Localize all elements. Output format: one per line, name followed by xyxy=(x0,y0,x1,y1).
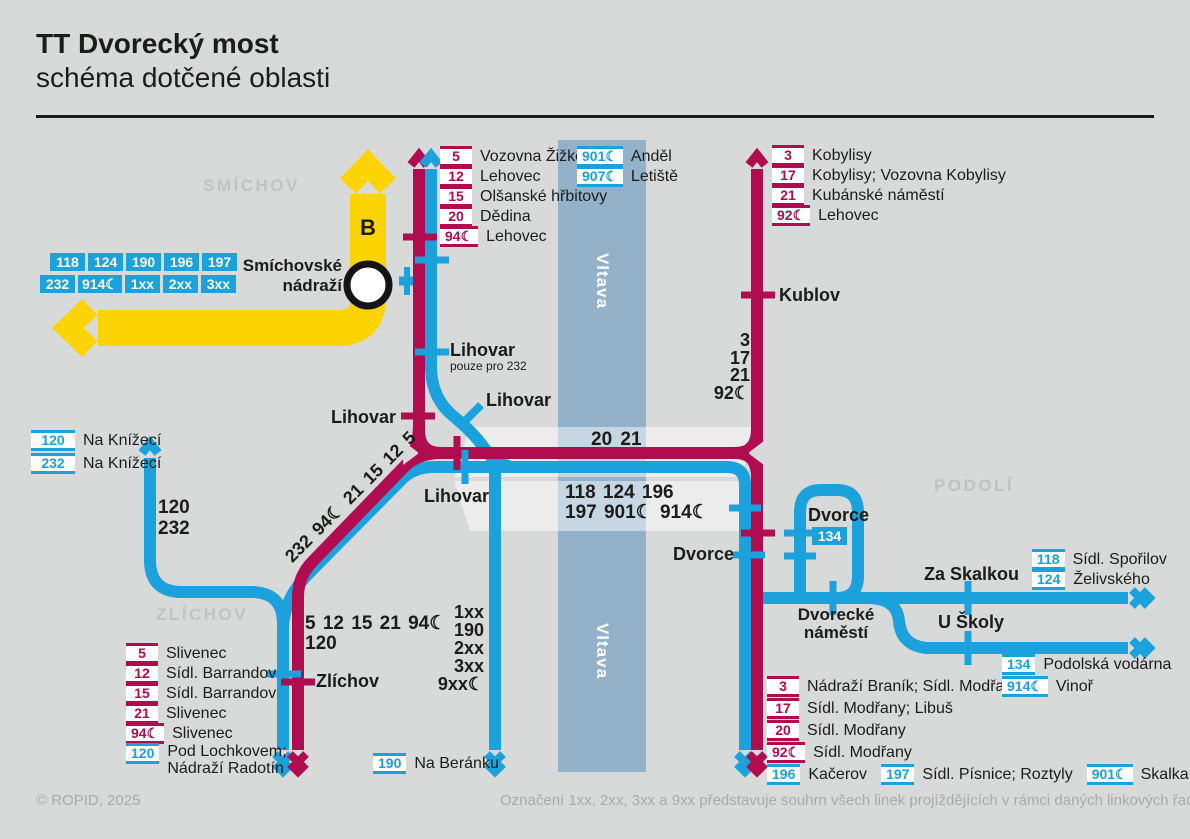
destination-label: Slivenec xyxy=(166,645,226,663)
page-subtitle: schéma dotčené oblasti xyxy=(36,62,330,94)
arrow-right-icon xyxy=(1132,590,1140,606)
bus-line-badge: 124 xyxy=(88,253,123,271)
terminus-row: 15 Olšanské hřbitovy xyxy=(440,186,607,207)
terminus-row: 15 Sídl. Barrandov xyxy=(126,683,276,704)
destination-label: Sídl. Barrandov xyxy=(166,665,276,683)
tram-line-badge: 3 xyxy=(767,676,799,697)
river-label: Vltava xyxy=(592,245,612,317)
terminus-row: 118 Sídl. Spořilov xyxy=(1032,549,1167,570)
metro-line-letter: B xyxy=(357,215,379,241)
route-numbers-line: 190 xyxy=(402,621,484,639)
route-numbers-line: 232 xyxy=(158,518,190,539)
tram-line-badge: 15 xyxy=(126,683,158,704)
terminus-row: 20 Sídl. Modřany xyxy=(767,720,906,741)
bus-line-badge: 914☾ xyxy=(78,275,122,293)
route-numbers-bridge-tram: 20 21 xyxy=(591,429,642,451)
station-label-zlichov: Zlíchov xyxy=(316,671,379,692)
destination-label: Sídl. Modřany xyxy=(813,744,912,762)
arrow-up-icon xyxy=(749,155,765,165)
terminus-row: 21 Kubánské náměstí xyxy=(772,185,945,206)
tram-line-badge: 12 xyxy=(126,663,158,684)
terminus-pair: 196 Kačerov xyxy=(767,764,867,785)
station-label-dvorce-loop: Dvorce xyxy=(808,505,869,526)
destination-label: Na Beránku xyxy=(414,755,499,773)
bus-line-badge: 197 xyxy=(202,253,237,271)
arrow-down-icon xyxy=(749,754,765,762)
terminus-row: 94☾ Lehovec xyxy=(440,226,547,247)
station-label-za-skalkou: Za Skalkou xyxy=(924,564,1019,585)
metro-station-circle xyxy=(347,264,389,306)
copyright-note: © ROPID, 2025 xyxy=(36,792,140,809)
bus-line-badge: 901☾ xyxy=(1087,764,1133,785)
destination-label: Sídl. Barrandov xyxy=(166,685,276,703)
terminus-row: 21 Slivenec xyxy=(126,703,226,724)
destination-label: Skalka xyxy=(1141,766,1189,784)
route-numbers-line: 3 xyxy=(698,332,750,350)
area-label-smichov: SMÍCHOV xyxy=(203,176,300,196)
bus-line-badge: 190 xyxy=(126,253,161,271)
route-numbers-kublov: 3 17 21 92☾ xyxy=(698,332,750,402)
terminus-row: 907☾ Letiště xyxy=(577,166,678,187)
tram-line-badge: 94☾ xyxy=(440,226,478,247)
area-label-zlichov: ZLÍCHOV xyxy=(156,605,248,625)
route-numbers-west: 120 232 xyxy=(158,497,190,539)
terminus-row: 901☾ Anděl xyxy=(577,146,672,167)
header-divider xyxy=(36,115,1154,118)
tram-line-badge: 20 xyxy=(440,206,472,227)
metro-badge-row: 118 124 190 196 197 xyxy=(50,253,237,271)
terminus-row: 914☾ Vinoř xyxy=(1002,676,1093,697)
destination-label: Na Knížecí xyxy=(83,455,161,473)
tram-line-badge: 12 xyxy=(440,166,472,187)
station-label-line: náměstí xyxy=(776,624,896,642)
bus-line-badge: 2xx xyxy=(163,275,198,293)
tram-line-badge: 92☾ xyxy=(772,205,810,226)
destination-label: Slivenec xyxy=(172,725,232,743)
bus-line-badge: 124 xyxy=(1032,569,1065,590)
bus-line-naknizeci xyxy=(150,458,283,624)
tram-line-badge: 20 xyxy=(767,720,799,741)
route-numbers-line: 197 901☾ 914☾ xyxy=(565,503,709,523)
bus-line-badge: 1xx xyxy=(125,275,160,293)
destination-label: Kačerov xyxy=(808,766,867,784)
terminus-pair: 901☾ Skalka xyxy=(1087,764,1189,785)
tram-line-badge: 15 xyxy=(440,186,472,207)
route-numbers-line: 9xx☾ xyxy=(402,675,484,693)
bus-line-badge: 196 xyxy=(164,253,199,271)
arrow-up-icon xyxy=(423,155,439,165)
bus-line-badge: 120 xyxy=(31,430,75,451)
bus-line-badge: 197 xyxy=(881,764,914,785)
destination-label: Kobylisy; Vozovna Kobylisy xyxy=(812,167,1006,185)
tram-line-badge: 17 xyxy=(772,165,804,186)
destination-label: Sídl. Modřany xyxy=(807,722,906,740)
destination-label: Sídl. Modřany; Libuš xyxy=(807,700,953,718)
schematic-map: TT Dvorecký most schéma dotčené oblasti xyxy=(0,0,1190,839)
route-numbers-line: 2xx xyxy=(402,639,484,657)
terminus-row: 94☾ Slivenec xyxy=(126,723,233,744)
destination-label: Sídl. Písnice; Roztyly xyxy=(922,766,1072,784)
tram-line-badge: 5 xyxy=(126,643,158,664)
station-label-kublov: Kublov xyxy=(779,285,840,306)
destination-label: Vozovna Žižkov xyxy=(480,148,592,166)
terminus-row: 120 Pod Lochkovem; Nádraží Radotín xyxy=(126,743,301,777)
page-title: TT Dvorecký most xyxy=(36,28,279,60)
bus-line-badge: 118 xyxy=(50,253,85,271)
bus-line-badge: 190 xyxy=(373,753,406,774)
route-numbers-line: 3xx xyxy=(402,657,484,675)
terminus-row: 3 Kobylisy xyxy=(772,145,872,166)
station-label-lihovar: Lihovar xyxy=(450,340,515,361)
metro-arrow-up-icon xyxy=(348,165,388,186)
route-numbers-line: 1xx xyxy=(402,603,484,621)
loop-badge-row: 134 xyxy=(812,527,847,545)
station-label-lihovar: Lihovar xyxy=(330,407,396,428)
terminus-row: 190 Na Beránku xyxy=(373,753,499,774)
destination-label: Slivenec xyxy=(166,705,226,723)
route-numbers-bridge-bus: 118 124 196 197 901☾ 914☾ xyxy=(565,483,709,522)
river-label: Vltava xyxy=(592,615,612,687)
destination-label: Želivského xyxy=(1073,571,1149,589)
terminus-row: 232 Na Knížecí xyxy=(31,453,161,474)
terminus-row: 5 Vozovna Žižkov xyxy=(440,146,592,167)
destination-label: Kobylisy xyxy=(812,147,872,165)
terminus-row: 92☾ Lehovec xyxy=(772,205,879,226)
bus-line-badge: 196 xyxy=(767,764,800,785)
destination-label: Podolská vodárna xyxy=(1043,656,1171,674)
tram-line-badge: 21 xyxy=(126,703,158,724)
route-numbers-line: 120 xyxy=(158,497,190,518)
bus-line-badge: 3xx xyxy=(201,275,236,293)
bus-line-badge: 901☾ xyxy=(577,146,623,167)
tram-line-badge: 3 xyxy=(772,145,804,166)
station-label-dvorecke-namesti: Dvorecké náměstí xyxy=(776,606,896,642)
destination-label: Lehovec xyxy=(486,228,547,246)
station-label-line: Dvorecké xyxy=(776,606,896,624)
bus-line-badge: 118 xyxy=(1032,549,1065,570)
station-label-u-skoly: U Školy xyxy=(938,612,1004,633)
tram-line-badge: 92☾ xyxy=(767,742,805,763)
destination-label: Vinoř xyxy=(1056,678,1093,696)
destination-label: Nádraží Braník; Sídl. Modřany xyxy=(807,678,1021,696)
destination-label: Na Knížecí xyxy=(83,432,161,450)
bus-line-badge: 232 xyxy=(31,453,75,474)
bus-line-badge: 232 xyxy=(40,275,75,293)
route-numbers-beranku: 1xx 190 2xx 3xx 9xx☾ xyxy=(402,603,484,693)
route-numbers-line: 21 xyxy=(698,367,750,385)
route-numbers-line: 118 124 196 xyxy=(565,483,709,503)
metro-badge-row: 232 914☾ 1xx 2xx 3xx xyxy=(40,275,236,293)
tram-line-badge: 94☾ xyxy=(126,723,164,744)
destination-label: Olšanské hřbitovy xyxy=(480,188,607,206)
metro-arrow-left-icon xyxy=(68,307,90,349)
terminus-row: 134 Podolská vodárna xyxy=(1002,654,1171,675)
terminus-row: 20 Dědina xyxy=(440,206,531,227)
bus-line-badge: 914☾ xyxy=(1002,676,1048,697)
bus-line-badge: 134 xyxy=(1002,654,1035,675)
terminus-row: 3 Nádraží Braník; Sídl. Modřany xyxy=(767,676,1021,697)
station-label-lihovar: Lihovar xyxy=(424,486,489,507)
destination-label: Anděl xyxy=(631,148,672,166)
tram-line-badge: 21 xyxy=(772,185,804,206)
terminus-row: 196 Kačerov 197 Sídl. Písnice; Roztyly 9… xyxy=(767,764,1189,785)
terminus-row: 5 Slivenec xyxy=(126,643,226,664)
footnote: Označení 1xx, 2xx, 3xx a 9xx představuje… xyxy=(500,792,1154,809)
bus-line-badge: 134 xyxy=(812,527,847,545)
terminus-row: 12 Sídl. Barrandov xyxy=(126,663,276,684)
terminus-row: 120 Na Knížecí xyxy=(31,430,161,451)
tram-line-badge: 5 xyxy=(440,146,472,167)
terminus-row: 92☾ Sídl. Modřany xyxy=(767,742,912,763)
station-label-lihovar: Lihovar xyxy=(486,390,551,411)
destination-label: Lehovec xyxy=(480,168,541,186)
destination-label: Dědina xyxy=(480,208,531,226)
destination-label: Lehovec xyxy=(818,207,879,225)
terminus-row: 17 Sídl. Modřany; Libuš xyxy=(767,698,953,719)
station-label-dvorce: Dvorce xyxy=(668,544,734,565)
destination-label: Kubánské náměstí xyxy=(812,187,945,205)
destination-label: Letiště xyxy=(631,168,678,186)
terminus-row: 124 Želivského xyxy=(1032,569,1150,590)
area-label-podoli: PODOLÍ xyxy=(934,476,1014,496)
terminus-row: 12 Lehovec xyxy=(440,166,541,187)
terminus-row: 17 Kobylisy; Vozovna Kobylisy xyxy=(772,165,1006,186)
bus-line-badge: 120 xyxy=(126,743,159,764)
tram-line-badge: 17 xyxy=(767,698,799,719)
route-numbers-line: 92☾ xyxy=(698,385,750,403)
terminus-pair: 197 Sídl. Písnice; Roztyly xyxy=(881,764,1073,785)
destination-label: Sídl. Spořilov xyxy=(1073,551,1167,569)
bus-line-badge: 907☾ xyxy=(577,166,623,187)
destination-label: Pod Lochkovem; Nádraží Radotín xyxy=(167,743,301,777)
station-note: pouze pro 232 xyxy=(450,359,527,373)
